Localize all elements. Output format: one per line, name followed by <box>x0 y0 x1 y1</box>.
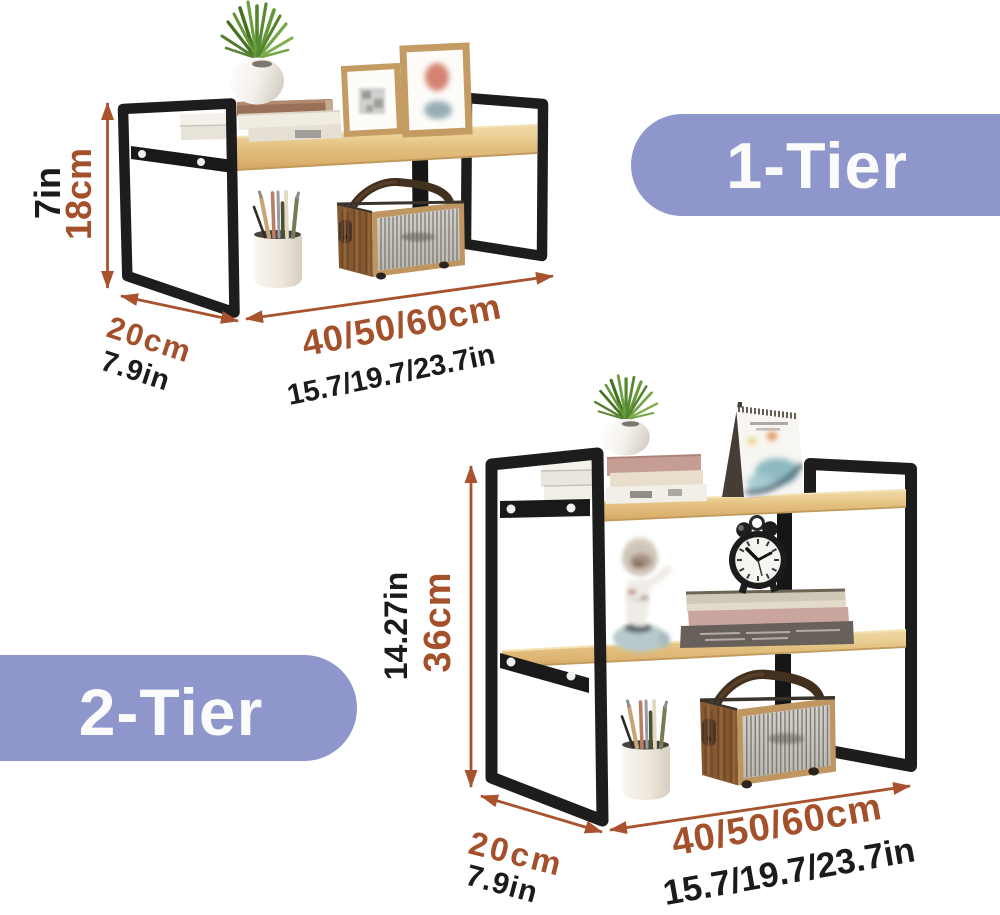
svg-text:14.27in: 14.27in <box>378 572 414 681</box>
svg-text:36cm: 36cm <box>417 571 459 672</box>
svg-text:1-Tier: 1-Tier <box>726 129 908 202</box>
svg-text:7in: 7in <box>27 167 68 219</box>
svg-text:2-Tier: 2-Tier <box>79 675 264 749</box>
